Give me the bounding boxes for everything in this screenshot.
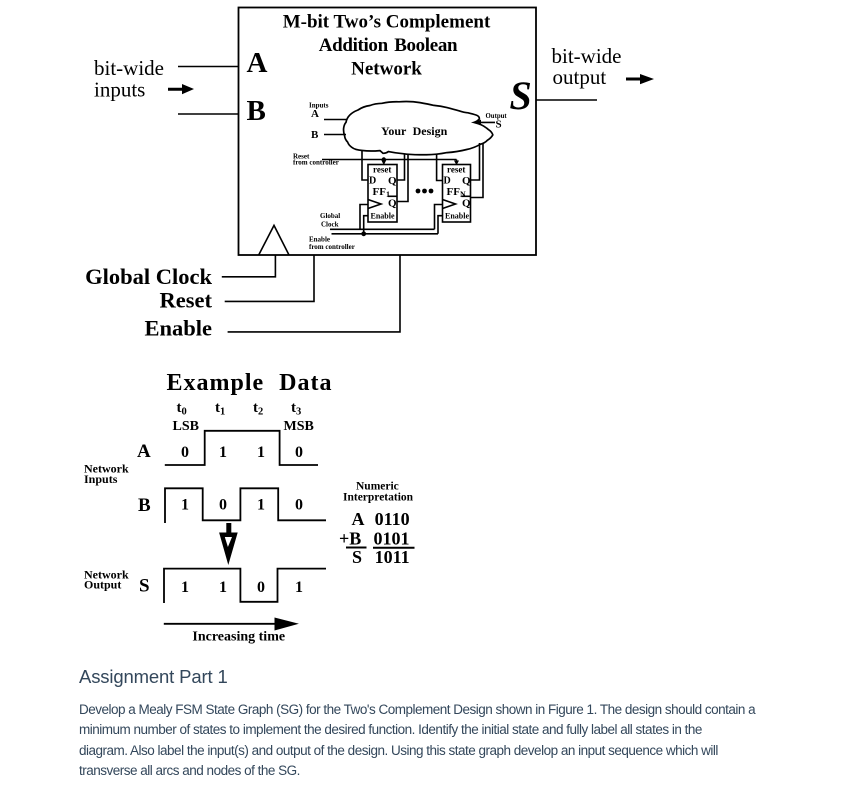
svg-text:Q: Q bbox=[462, 175, 471, 187]
svg-text:A: A bbox=[137, 441, 151, 462]
svg-text:bit-wide: bit-wide bbox=[94, 56, 164, 80]
svg-text:Inputs: Inputs bbox=[84, 472, 118, 486]
svg-text:Your Design: Your Design bbox=[381, 124, 448, 138]
svg-text:0110: 0110 bbox=[375, 509, 410, 529]
svg-text:S: S bbox=[510, 73, 532, 118]
svg-text:Q: Q bbox=[388, 198, 397, 210]
svg-text:1: 1 bbox=[181, 579, 189, 596]
svg-text:Enable: Enable bbox=[144, 315, 212, 340]
svg-text:Enable: Enable bbox=[445, 212, 469, 221]
svg-text:t3: t3 bbox=[291, 400, 301, 418]
svg-text:Network: Network bbox=[351, 59, 422, 80]
svg-text:B: B bbox=[247, 95, 266, 127]
svg-text:t2: t2 bbox=[253, 400, 263, 418]
svg-text:Increasing time: Increasing time bbox=[192, 630, 285, 645]
svg-text:S: S bbox=[352, 547, 362, 567]
svg-text:0: 0 bbox=[295, 444, 303, 461]
svg-text:Interpretation: Interpretation bbox=[343, 492, 414, 504]
svg-text:0: 0 bbox=[257, 579, 265, 596]
svg-text:Output: Output bbox=[84, 578, 121, 592]
svg-text:output: output bbox=[553, 65, 607, 89]
svg-text:Enable: Enable bbox=[371, 212, 395, 221]
svg-text:S: S bbox=[139, 576, 150, 597]
svg-text:LSB: LSB bbox=[173, 419, 199, 434]
svg-text:Clock: Clock bbox=[321, 221, 339, 229]
svg-text:0: 0 bbox=[219, 497, 227, 514]
svg-text:S: S bbox=[496, 119, 502, 131]
svg-text:MSB: MSB bbox=[284, 419, 314, 434]
svg-text:from controller: from controller bbox=[309, 243, 355, 251]
svg-text:A: A bbox=[311, 108, 319, 120]
svg-text:+B: +B bbox=[339, 529, 361, 549]
svg-text:0: 0 bbox=[181, 444, 189, 461]
svg-text:reset: reset bbox=[447, 165, 465, 175]
svg-text:1: 1 bbox=[257, 444, 265, 461]
svg-text:D: D bbox=[369, 176, 376, 187]
svg-text:B: B bbox=[311, 129, 319, 141]
svg-text:Global Clock: Global Clock bbox=[85, 264, 212, 289]
svg-text:Q: Q bbox=[462, 198, 471, 210]
svg-text:Global: Global bbox=[320, 212, 340, 220]
svg-text:1: 1 bbox=[257, 497, 265, 514]
svg-text:0101: 0101 bbox=[374, 529, 410, 549]
svg-text:0: 0 bbox=[295, 497, 303, 514]
svg-text:Addition Boolean: Addition Boolean bbox=[319, 35, 458, 56]
svg-text:A: A bbox=[247, 47, 268, 79]
svg-text:1: 1 bbox=[219, 579, 227, 596]
svg-text:1011: 1011 bbox=[375, 547, 410, 567]
svg-text:A: A bbox=[352, 509, 365, 529]
svg-text:Example Data: Example Data bbox=[167, 370, 333, 396]
svg-text:Reset: Reset bbox=[160, 288, 213, 313]
svg-text:1: 1 bbox=[295, 579, 303, 596]
svg-text:M-bit Two’s Complement: M-bit Two’s Complement bbox=[283, 12, 491, 33]
svg-text:inputs: inputs bbox=[94, 78, 145, 102]
svg-text:Q: Q bbox=[388, 175, 397, 187]
svg-text:B: B bbox=[138, 495, 151, 516]
svg-text:t0: t0 bbox=[177, 400, 187, 418]
svg-text:t1: t1 bbox=[215, 400, 225, 418]
svg-text:1: 1 bbox=[181, 497, 189, 514]
svg-text:D: D bbox=[444, 176, 451, 187]
svg-text:reset: reset bbox=[373, 165, 391, 175]
svg-text:1: 1 bbox=[219, 444, 227, 461]
